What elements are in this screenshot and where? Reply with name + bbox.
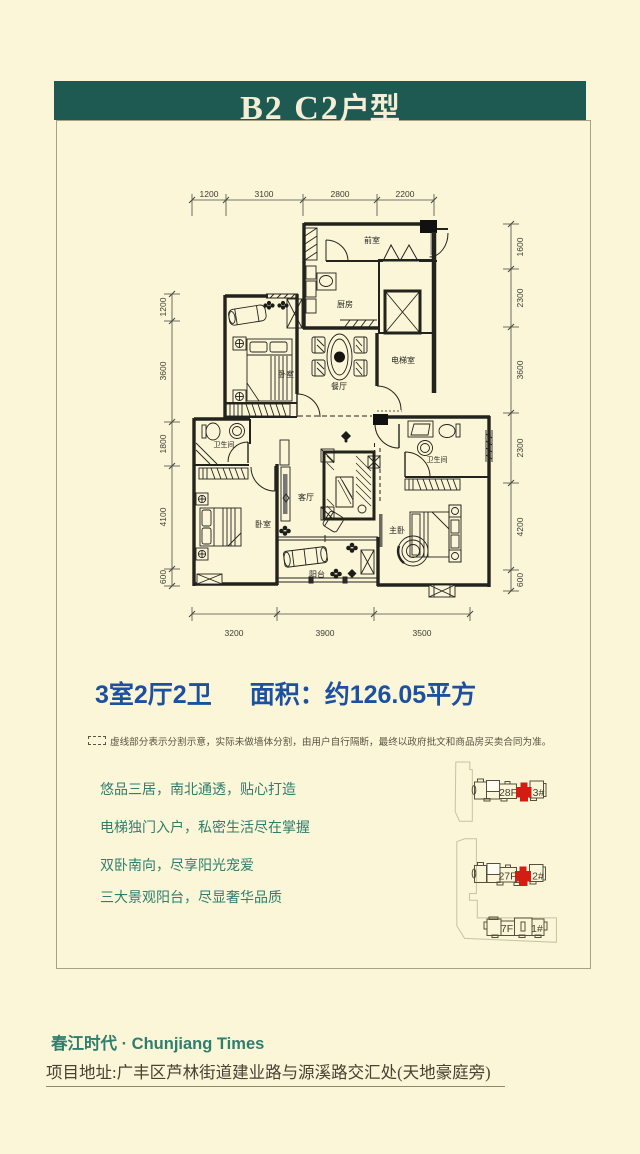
svg-text:3#: 3# [533,787,545,799]
svg-text:28F: 28F [499,787,517,799]
svg-text:27F: 27F [498,871,516,883]
svg-text:1#: 1# [531,923,543,935]
svg-text:2#: 2# [532,871,544,883]
svg-text:7F: 7F [501,923,513,935]
